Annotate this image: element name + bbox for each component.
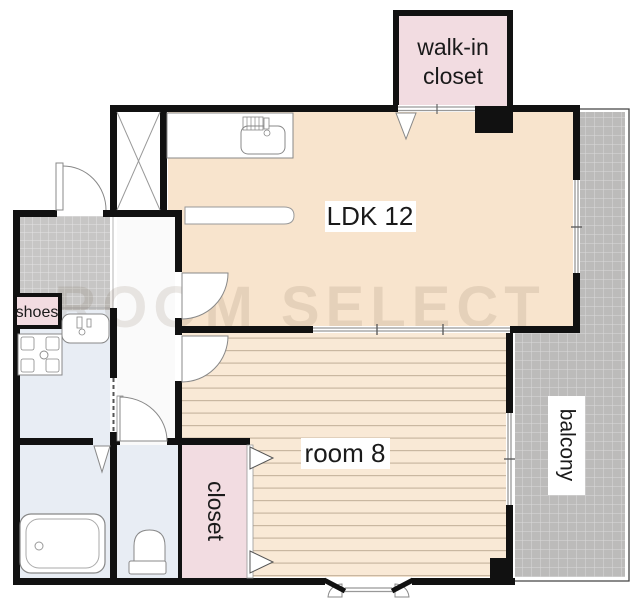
floor-plan-svg: ROOM SELECT <box>0 0 640 615</box>
floor-plan: ROOM SELECT <box>0 0 640 615</box>
toilet-tank-icon <box>129 561 166 574</box>
closet-label: closet <box>203 481 229 542</box>
bay-window-frame <box>324 580 413 591</box>
wall-segment <box>110 105 398 112</box>
front-door-arc <box>63 166 106 210</box>
vanity-sink-icon <box>62 314 109 343</box>
ldk-room8-window-gap <box>313 326 510 333</box>
wall-segment <box>110 105 117 217</box>
vanity-drain-icon <box>79 329 85 335</box>
wall-segment <box>167 438 250 445</box>
bathtub-icon <box>20 514 105 573</box>
walk-in-closet-room <box>396 13 510 109</box>
wall-segment <box>490 558 513 578</box>
wall-segment <box>103 210 182 217</box>
washer-pad-icon <box>46 359 59 372</box>
room8-label: room 8 <box>305 438 386 468</box>
wall-segment <box>573 112 580 180</box>
bay-window <box>324 580 413 597</box>
washer-pad-icon <box>21 337 34 350</box>
wall-segment <box>510 326 580 333</box>
walk-in-closet-label-line1: walk-in <box>416 34 489 60</box>
kitchen-faucet-icon <box>264 118 269 129</box>
shoes-label: shoes <box>16 304 59 321</box>
kitchen-faucet-base-icon <box>264 130 270 136</box>
wall-segment <box>506 505 513 558</box>
bathtub-drain-icon <box>35 542 43 550</box>
washer-drain-icon <box>40 351 48 359</box>
balcony-label: balcony <box>555 409 578 482</box>
washer-pad-icon <box>21 359 34 372</box>
toilet-bowl-icon <box>134 530 165 562</box>
vanity-faucet-icon <box>87 319 91 327</box>
wall-segment <box>573 273 580 330</box>
wall-segment <box>412 578 515 585</box>
wall-segment <box>175 217 182 272</box>
counter-bar <box>185 207 294 224</box>
vanity-faucet-icon <box>77 317 82 328</box>
wall-segment <box>182 326 313 333</box>
wall-segment <box>175 381 182 445</box>
wall-segment <box>13 210 20 585</box>
walk-in-closet-label-line2: closet <box>423 63 484 89</box>
wall-segment <box>110 308 117 378</box>
bay-window-glass <box>345 588 392 592</box>
washer-pad-icon <box>46 337 59 350</box>
wall-segment <box>13 438 93 445</box>
wall-segment <box>160 105 167 217</box>
wall-segment <box>175 318 182 335</box>
wall-segment <box>506 333 513 413</box>
wall-segment <box>110 445 117 578</box>
wall-segment <box>475 112 513 133</box>
wall-segment <box>13 578 325 585</box>
front-door-leaf <box>56 163 63 210</box>
ldk-label: LDK 12 <box>327 201 414 231</box>
